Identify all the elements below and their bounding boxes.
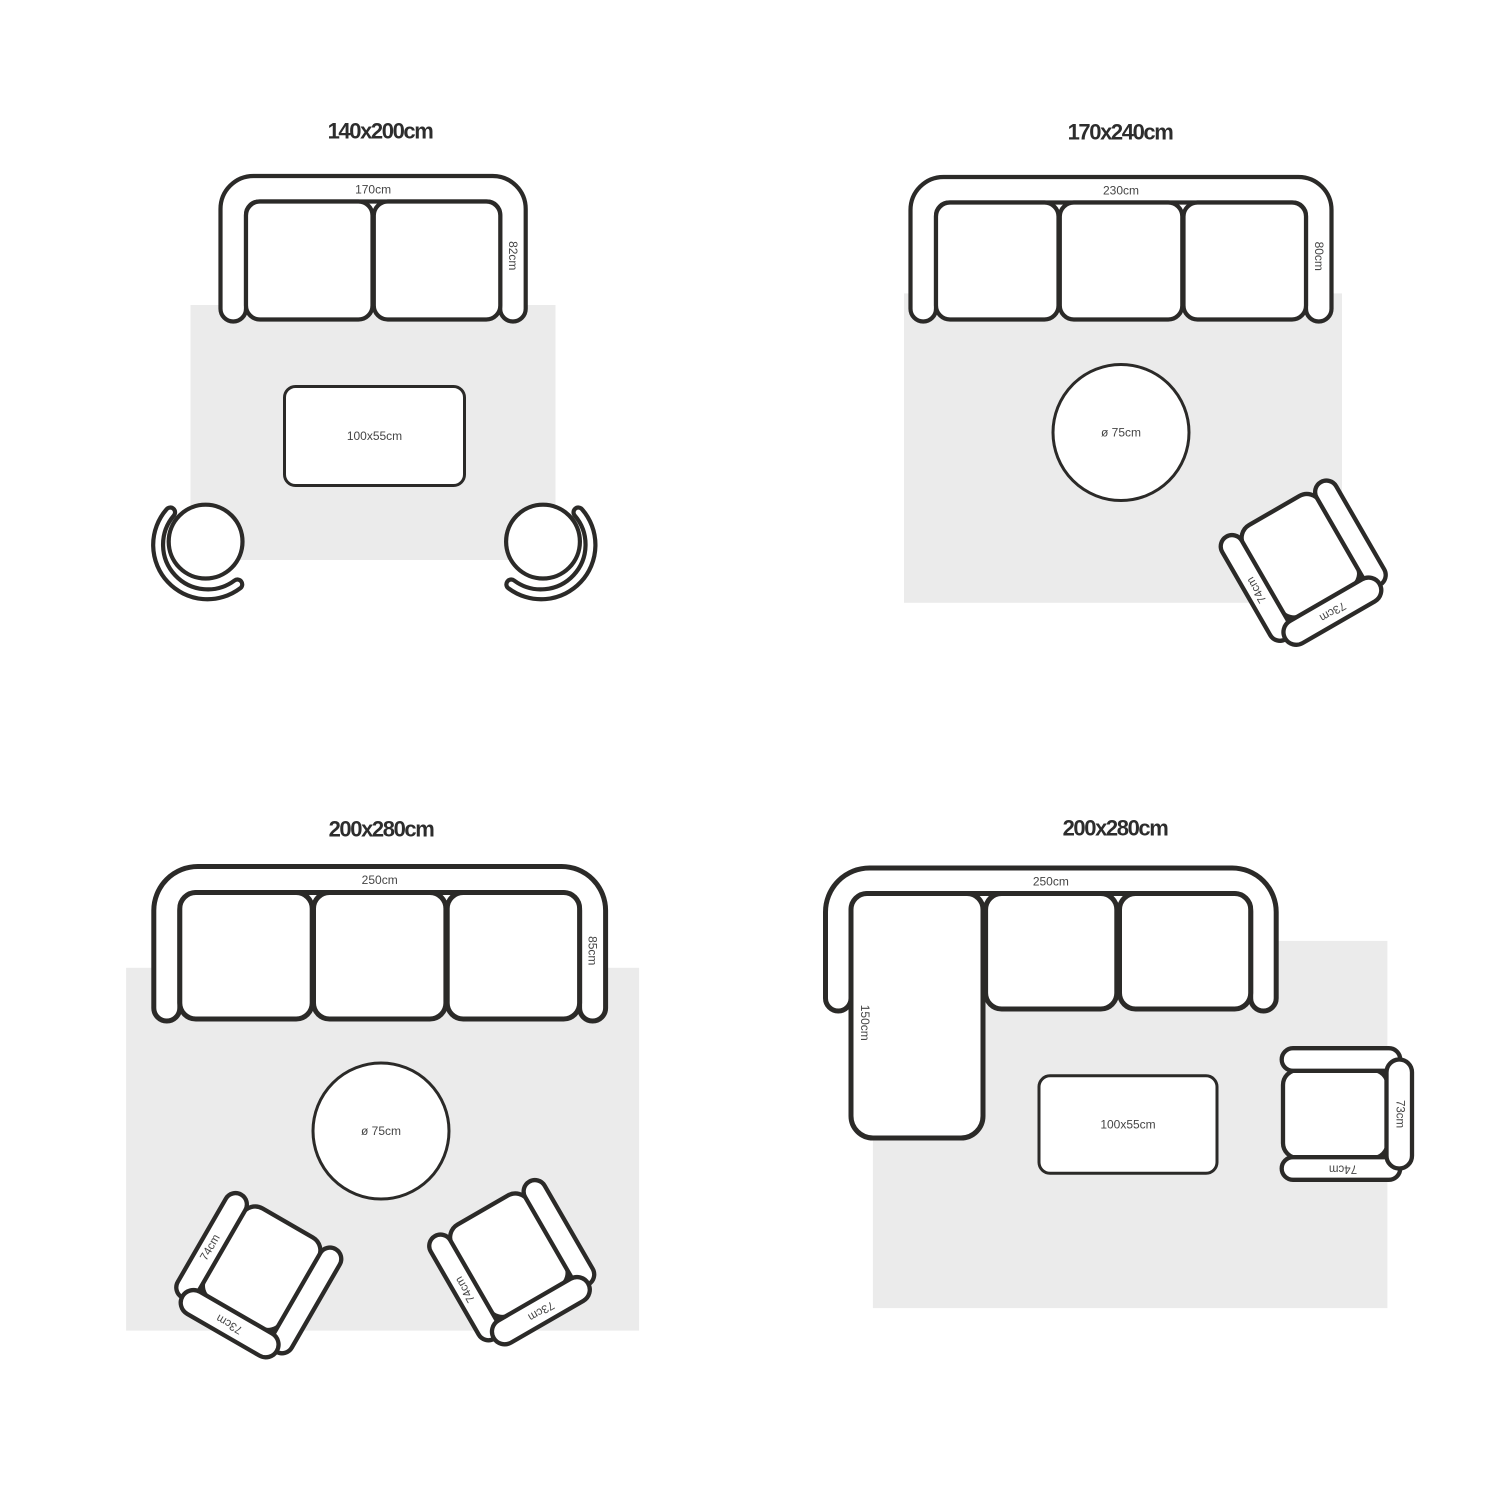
svg-text:85cm: 85cm xyxy=(586,936,600,965)
svg-text:ø 75cm: ø 75cm xyxy=(1101,426,1141,440)
svg-text:140x200cm: 140x200cm xyxy=(328,119,434,144)
svg-text:ø 75cm: ø 75cm xyxy=(361,1124,401,1138)
svg-text:250cm: 250cm xyxy=(362,873,398,887)
svg-text:250cm: 250cm xyxy=(1033,874,1069,888)
svg-text:100x55cm: 100x55cm xyxy=(1100,1118,1155,1132)
svg-text:100x55cm: 100x55cm xyxy=(347,429,402,443)
svg-text:80cm: 80cm xyxy=(1312,242,1326,271)
svg-text:200x280cm: 200x280cm xyxy=(329,817,435,842)
svg-text:74cm: 74cm xyxy=(1329,1163,1357,1175)
svg-text:230cm: 230cm xyxy=(1103,183,1139,197)
svg-text:170cm: 170cm xyxy=(355,182,391,196)
svg-text:73cm: 73cm xyxy=(1393,1100,1405,1128)
svg-text:200x280cm: 200x280cm xyxy=(1063,816,1169,841)
svg-text:82cm: 82cm xyxy=(506,241,520,270)
svg-text:150cm: 150cm xyxy=(858,1005,872,1041)
svg-text:170x240cm: 170x240cm xyxy=(1068,120,1174,145)
